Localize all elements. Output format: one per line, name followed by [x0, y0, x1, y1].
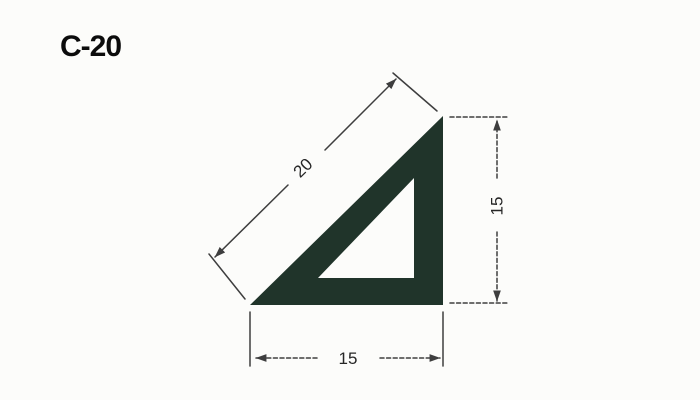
drawing-page: C-20 20 15 — [0, 0, 700, 400]
profile-drawing: 20 15 15 — [0, 0, 700, 400]
triangle-profile-shape — [250, 116, 443, 305]
dimension-label-base: 15 — [339, 349, 358, 368]
dimension-line-arrow — [325, 79, 396, 150]
dimension-base: 15 — [250, 312, 443, 368]
dimension-label-side: 15 — [488, 197, 507, 216]
dimension-side: 15 — [450, 117, 508, 303]
extension-line — [209, 254, 245, 299]
extension-line — [393, 73, 437, 111]
dimension-label-hypotenuse: 20 — [290, 155, 317, 182]
dimension-line-arrow — [215, 185, 288, 257]
